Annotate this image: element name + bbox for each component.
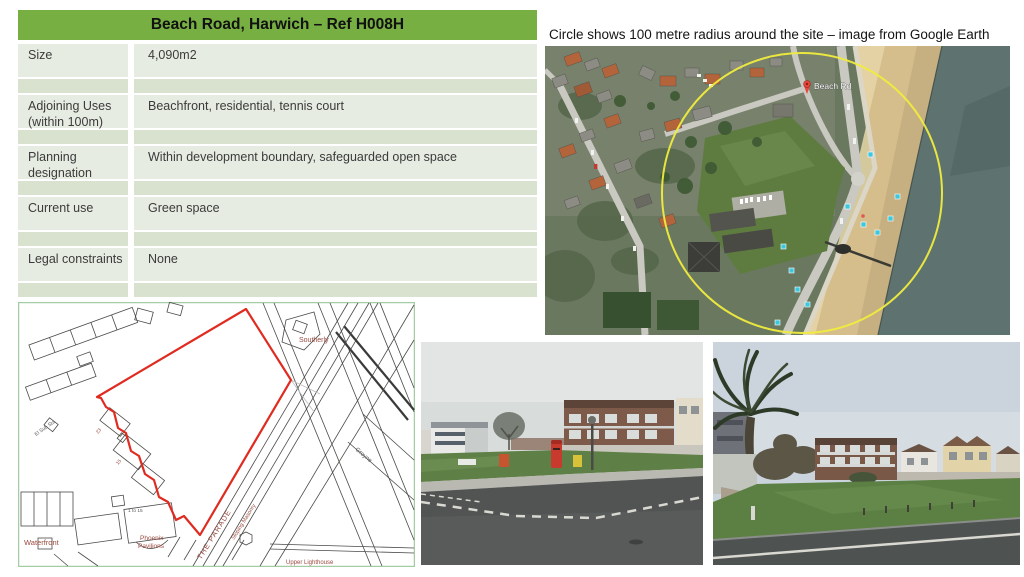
- photo1-sign: [458, 459, 476, 465]
- photo-left-svg: [421, 342, 703, 565]
- label-phoenix-2: Pavilions: [138, 543, 165, 550]
- photo1-grit-bin: [573, 455, 582, 467]
- label-upper-lighthouse: Upper Lighthouse: [286, 560, 334, 566]
- label-1-to-15: 1 to 15: [128, 508, 143, 514]
- row-label: Size: [18, 44, 128, 77]
- table-row-current-use: Current use Green space: [18, 197, 537, 230]
- row-value: None: [134, 248, 537, 281]
- slide-page: Beach Road, Harwich – Ref H008H Size 4,0…: [0, 0, 1024, 577]
- photo1-bin: [499, 454, 509, 467]
- aerial-tennis-court: [603, 292, 651, 328]
- aerial-tennis-court: [657, 300, 699, 330]
- photo1-road-near: [421, 510, 703, 565]
- row-value: Green space: [134, 197, 537, 230]
- photo1-modern-flats: [421, 422, 488, 454]
- photo-right-svg: [713, 342, 1020, 565]
- row-label: Planning designation: [18, 146, 128, 179]
- siteplan-svg: Southerly Waterfront Phoenix Pavilions U…: [18, 302, 415, 567]
- aerial-road-junction: [851, 172, 865, 186]
- table-row-adjoining-uses: Adjoining Uses (within 100m) Beachfront,…: [18, 95, 537, 128]
- row-value: 4,090m2: [134, 44, 537, 77]
- table-row-spacer: [18, 181, 537, 195]
- table-row-size: Size 4,090m2: [18, 44, 537, 77]
- photo1-manhole: [629, 540, 643, 545]
- table-row-spacer: [18, 79, 537, 93]
- site-summary-table: Beach Road, Harwich – Ref H008H Size 4,0…: [18, 10, 537, 299]
- table-title: Beach Road, Harwich – Ref H008H: [18, 10, 537, 40]
- photo1-brick-terraces: [564, 398, 703, 449]
- aerial-caption: Circle shows 100 metre radius around the…: [549, 27, 1019, 42]
- aerial-red-car: [594, 164, 597, 169]
- table-row-planning-designation: Planning designation Within development …: [18, 146, 537, 179]
- photo2-bollard: [751, 506, 755, 520]
- row-label: Current use: [18, 197, 128, 230]
- label-southerly: Southerly: [299, 337, 329, 344]
- table-row-legal-constraints: Legal constraints None: [18, 248, 537, 281]
- label-waterfront: Waterfront: [24, 538, 60, 547]
- row-label: Legal constraints: [18, 248, 128, 281]
- row-value: Beachfront, residential, tennis court: [134, 95, 537, 128]
- table-row-spacer: [18, 232, 537, 246]
- aerial-satellite-image: Beach Rd: [545, 46, 1010, 335]
- row-label: Adjoining Uses (within 100m): [18, 95, 128, 128]
- row-value: Within development boundary, safeguarded…: [134, 146, 537, 179]
- photo1-post-box: [551, 440, 562, 468]
- table-row-spacer: [18, 283, 537, 297]
- photo1-sky-light: [421, 342, 703, 402]
- aerial-svg: Beach Rd: [545, 46, 1010, 335]
- site-plan-map: Southerly Waterfront Phoenix Pavilions U…: [18, 302, 415, 567]
- table-row-spacer: [18, 130, 537, 144]
- photo2-left-building-balcony: [717, 436, 743, 441]
- aerial-small-red-marker: [861, 214, 865, 218]
- beach-rd-pin-label: Beach Rd: [814, 81, 852, 91]
- site-photo-green: [713, 342, 1020, 565]
- site-photo-junction: [421, 342, 703, 565]
- label-phoenix-1: Phoenix: [140, 535, 164, 542]
- photo2-brick-flats: [815, 438, 897, 484]
